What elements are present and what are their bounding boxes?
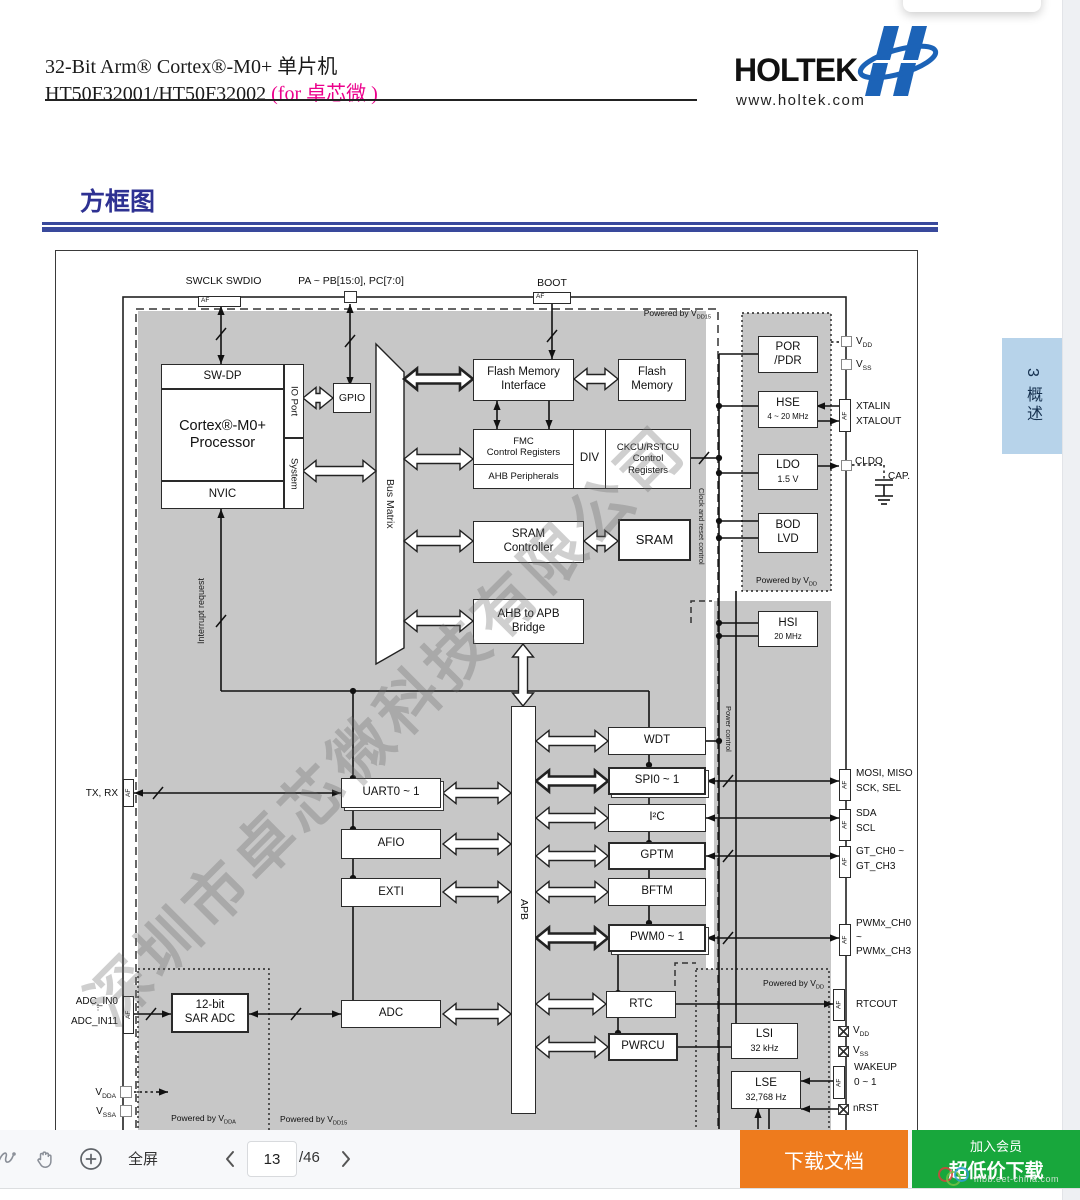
block-diagram-figure: SW-DP Cortex®-M0+ Processor NVIC IO Port… (55, 250, 918, 1133)
holtek-swoosh-icon (856, 20, 942, 100)
label-powered-vdd-right: Powered by VDD (742, 575, 831, 589)
cldo-pad (841, 460, 852, 471)
pin-label-vss2: VSS (853, 1044, 868, 1060)
pin-label-scl: SCL (856, 822, 875, 835)
page-number-input[interactable] (247, 1141, 297, 1177)
pin-label-vss: VSS (856, 358, 871, 374)
block-flash-memory-interface: Flash Memory Interface (473, 359, 574, 401)
nrst-pad (838, 1104, 849, 1115)
block-nvic: NVIC (161, 481, 284, 509)
holtek-logo: HOLTEK www.holtek.com (728, 20, 943, 110)
pin-label-xtalout: XTALOUT (856, 415, 901, 428)
block-bod-lvd: BOD LVD (758, 513, 818, 553)
next-page-button[interactable] (338, 1147, 354, 1171)
scrollbar-track[interactable] (1062, 0, 1080, 1200)
block-swdp: SW-DP (161, 364, 284, 389)
af-pad-wakeup: AF (833, 1066, 845, 1099)
pin-label-mosi: MOSI, MISO (856, 767, 913, 780)
pin-label-vdd2: VDD (853, 1024, 869, 1040)
block-por-pdr: POR /PDR (758, 336, 818, 373)
pin-label-adcin11: ADC_IN11 (56, 1015, 118, 1028)
af-pad-rtcout: AF (833, 989, 845, 1021)
doc-title-line2: HT50F32001/HT50F32002 (for 卓芯微 ) (45, 77, 378, 106)
block-ldo: LDO1.5 V (758, 454, 818, 490)
floating-button-shadow (903, 0, 1041, 12)
block-exti: EXTI (341, 878, 441, 907)
af-pad-pwm: AF (839, 924, 851, 956)
pdf-viewer-page: 32-Bit Arm® Cortex®-M0+ 单片机 HT50F32001/H… (0, 0, 1080, 1200)
label-powered-vdd-bottom: Powered by VDD (699, 978, 824, 992)
pin-label-vssa: VSSA (56, 1105, 116, 1121)
join-member-label: 加入会员 (970, 1136, 1022, 1155)
block-hsi: HSI20 MHz (758, 611, 818, 647)
block-gpio: GPIO (333, 383, 371, 413)
pin-label-papb: PA ~ PB[15:0], PC[7:0] (271, 275, 431, 289)
vdda-pad (120, 1086, 132, 1098)
annotate-icon[interactable] (0, 1144, 21, 1174)
af-pad-uart: AF (123, 779, 134, 807)
gpio-pad (344, 291, 357, 303)
fullscreen-button[interactable]: 全屏 (128, 1148, 158, 1169)
site-logo-ring-blue (954, 1167, 969, 1182)
pin-label-adc-dots: ⋮ (56, 1003, 102, 1013)
af-pad-gptm: AF (839, 846, 851, 878)
block-bftm: BFTM (608, 878, 706, 906)
block-flash-memory: Flash Memory (618, 359, 686, 401)
chapter-label: 概述 (1020, 386, 1044, 424)
label-clock-reset-control: Clock and reset control (697, 451, 706, 601)
pin-label-boot: BOOT (522, 277, 582, 291)
block-ahb-apb-bridge: AHB to APB Bridge (473, 599, 584, 644)
pin-label-xtalin: XTALIN (856, 400, 890, 413)
section-heading: 方框图 (80, 182, 155, 218)
pin-label-cap: CAP. (888, 470, 910, 483)
block-cortex: Cortex®-M0+ Processor (161, 389, 284, 481)
af-pad-swd: AF (198, 296, 241, 307)
block-sram-controller: SRAM Controller (473, 521, 584, 563)
holtek-url: www.holtek.com (736, 92, 865, 109)
doc-title-for-note: (for 卓芯微 ) (271, 83, 378, 105)
pin-label-wakeup: WAKEUP (854, 1061, 897, 1074)
header-rule (45, 99, 697, 101)
block-uart: UART0 ~ 1 (341, 778, 441, 808)
label-powered-vdda: Powered by VDDA (138, 1113, 269, 1127)
pin-label-pwmx-tilde: ~ (856, 931, 862, 944)
doc-title-line1: 32-Bit Arm® Cortex®-M0+ 单片机 (45, 50, 337, 79)
block-rtc: RTC (606, 991, 676, 1018)
pin-label-sck: SCK, SEL (856, 782, 901, 795)
label-powered-vdd15-top: Powered by VDD15 (556, 308, 711, 322)
label-interrupt-request: Interrupt request (196, 551, 206, 671)
pin-label-vdd: VDD (856, 335, 872, 351)
block-io-port: IO Port (284, 364, 304, 438)
download-doc-button[interactable]: 下载文档 (740, 1130, 908, 1188)
block-wdt: WDT (608, 727, 706, 755)
toolbar-divider (0, 1188, 1080, 1189)
af-pad-spi: AF (839, 769, 851, 801)
af-pad-boot: AF (533, 292, 571, 304)
page-total: /46 (299, 1149, 320, 1166)
block-fmc-ahb: FMC Control Registers AHB Peripherals (473, 429, 574, 489)
block-lsi: LSI32 kHz (731, 1023, 798, 1059)
block-bus-matrix: Bus Matrix (376, 344, 404, 664)
vss-pad (841, 359, 852, 370)
pin-label-rtcout: RTCOUT (856, 998, 897, 1011)
block-i2c: I²C (608, 804, 706, 832)
block-afio: AFIO (341, 829, 441, 859)
hand-pan-icon[interactable] (30, 1144, 60, 1174)
label-power-control: Power control (724, 689, 733, 769)
block-gptm: GPTM (608, 842, 706, 870)
block-ckcu-rstcu: CKCU/RSTCU Control Registers (605, 429, 691, 489)
prev-page-button[interactable] (222, 1147, 238, 1171)
af-pad-xtal: AF (839, 399, 851, 432)
block-apb-bus: APB (511, 706, 536, 1114)
chapter-number: 3 (1023, 368, 1041, 380)
block-spi: SPI0 ~ 1 (608, 767, 706, 795)
block-pwm: PWM0 ~ 1 (608, 924, 706, 952)
chapter-bookmark-tab[interactable]: 3 概述 (1002, 338, 1062, 454)
pin-label-vdda: VDDA (56, 1086, 116, 1102)
block-div: DIV (573, 429, 606, 489)
site-watermark: mbb.eet-china.com (974, 1174, 1059, 1184)
pin-label-wakeup-range: 0 ~ 1 (854, 1076, 877, 1089)
holtek-logo-text: HOLTEK (734, 52, 857, 89)
pin-label-cldo: CLDO (855, 455, 883, 468)
pin-label-gt3: GT_CH3 (856, 860, 895, 873)
block-sram: SRAM (618, 519, 691, 561)
vdd-pad (841, 336, 852, 347)
pin-label-pwmx0: PWMx_CH0 (856, 917, 911, 930)
vdd2-pad (838, 1026, 849, 1037)
pin-label-txrx: TX, RX (56, 787, 118, 800)
section-divider (42, 222, 938, 227)
block-ahb-peripherals: AHB Peripherals (474, 465, 573, 488)
af-pad-i2c: AF (839, 809, 851, 841)
pin-label-pwmx3: PWMx_CH3 (856, 945, 911, 958)
block-fmc: FMC Control Registers (474, 430, 573, 465)
pin-label-nrst: nRST (853, 1102, 879, 1115)
block-adc: ADC (341, 1000, 441, 1028)
af-pad-adcin: AF (123, 996, 134, 1034)
zoom-in-icon[interactable] (76, 1144, 106, 1174)
block-lse: LSE32,768 Hz (731, 1071, 801, 1109)
pin-label-gt0: GT_CH0 ~ (856, 845, 904, 858)
block-sar-adc: 12-bit SAR ADC (171, 993, 249, 1033)
block-pwrcu: PWRCU (608, 1033, 678, 1061)
block-system: System (284, 438, 304, 509)
vssa-pad (120, 1105, 132, 1117)
label-powered-vdd15-bottom: Powered by VDD15 (280, 1114, 347, 1128)
pin-label-sda: SDA (856, 807, 877, 820)
vss2-pad (838, 1046, 849, 1057)
block-hse: HSE4 ~ 20 MHz (758, 391, 818, 428)
